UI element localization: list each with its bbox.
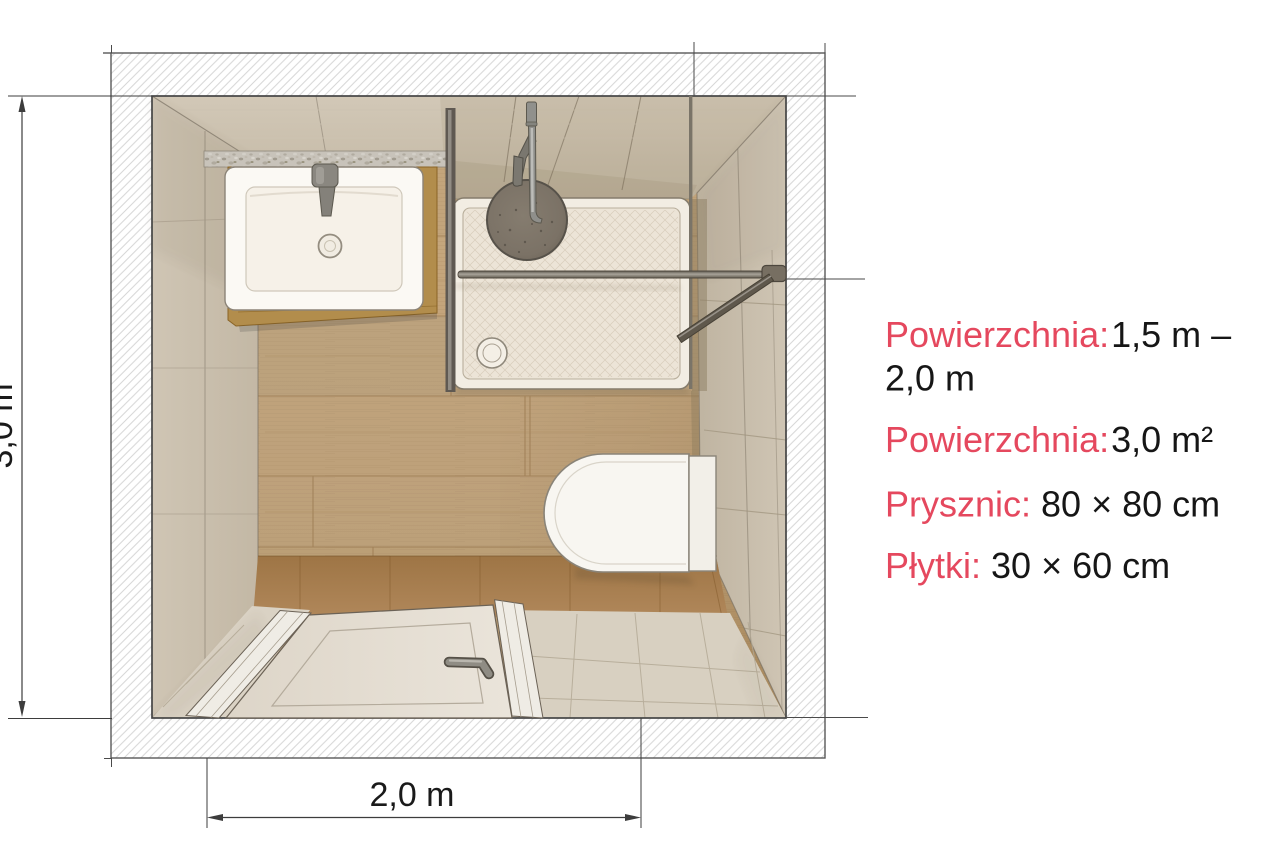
svg-text:Powierzchnia:1,5 m –: Powierzchnia:1,5 m – (885, 314, 1231, 355)
svg-text:2,0 m: 2,0 m (885, 358, 975, 399)
svg-text:Powierzchnia:3,0 m²: Powierzchnia:3,0 m² (885, 419, 1213, 460)
svg-text:3,0 m: 3,0 m (0, 383, 20, 468)
svg-text:Płytki: 30 × 60 cm: Płytki: 30 × 60 cm (885, 545, 1170, 586)
svg-text:Prysznic: 80 × 80 cm: Prysznic: 80 × 80 cm (885, 484, 1220, 525)
svg-text:2,0 m: 2,0 m (369, 776, 454, 814)
